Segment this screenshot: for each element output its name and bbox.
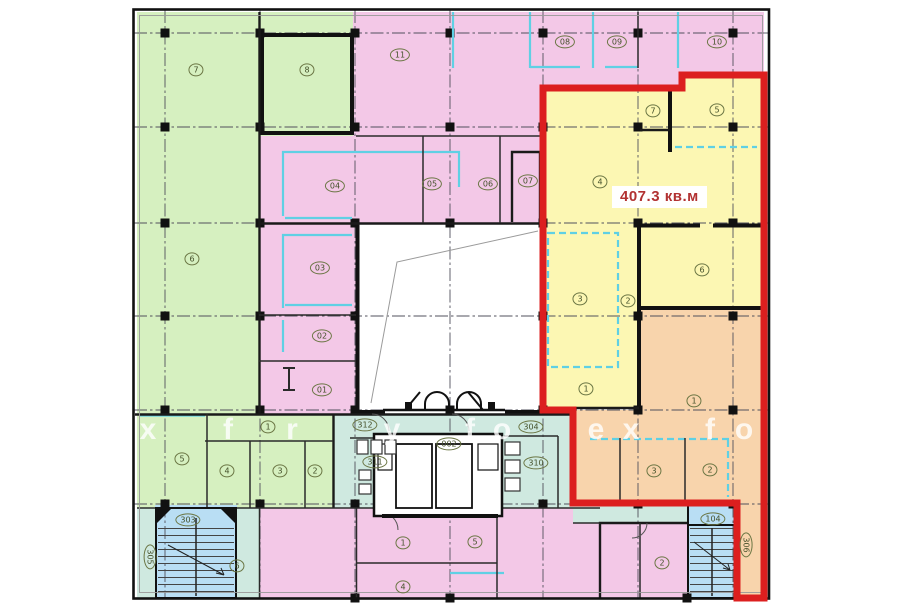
room-label-orange-2: 2: [702, 463, 717, 476]
room-labels-layer: 7861108091004050607030201475632113215432…: [0, 0, 900, 604]
room-label-pink-11: 11: [390, 48, 410, 61]
room-label-teal-311: 311: [362, 455, 387, 468]
room-label-green-7: 7: [188, 63, 203, 76]
area-value: 407.3: [620, 188, 660, 205]
room-label-teal-305: 305: [143, 544, 156, 569]
room-label-yellow-4: 4: [592, 175, 607, 188]
room-label-pink-09: 09: [607, 35, 627, 48]
room-label-yellow-5: 5: [709, 103, 724, 116]
room-label-green-6: 6: [184, 252, 199, 265]
room-label-pink-08: 08: [555, 35, 575, 48]
floor-plan: xfryfoexfo 78611080910040506070302014756…: [0, 0, 900, 604]
room-label-yellow-3: 3: [572, 292, 587, 305]
room-label-teal-002: 002: [436, 437, 461, 450]
room-label-pink-4: 4: [395, 580, 410, 593]
area-label: 407.3 кв.м: [612, 186, 707, 208]
room-label-yellow-6: 6: [694, 263, 709, 276]
room-label-pink-07: 07: [518, 174, 538, 187]
room-label-yellow-2: 2: [620, 294, 635, 307]
room-label-pink-10: 10: [707, 35, 727, 48]
room-label-stair-303: 303: [175, 513, 200, 526]
room-label-pink-03: 03: [310, 261, 330, 274]
area-unit: кв.м: [665, 188, 699, 205]
room-label-green-3: 3: [272, 464, 287, 477]
room-label-pink-5: 5: [467, 535, 482, 548]
room-label-pink-02: 02: [312, 329, 332, 342]
room-label-orange-1: 1: [686, 394, 701, 407]
room-label-teal-312: 312: [352, 418, 377, 431]
room-label-pink-2: 2: [654, 556, 669, 569]
room-label-orange-3: 3: [646, 464, 661, 477]
room-label-stair-104: 104: [700, 512, 725, 525]
room-label-orange-306: 306: [739, 532, 752, 557]
room-label-teal-304: 304: [518, 420, 543, 433]
room-label-pink-06: 06: [478, 177, 498, 190]
room-label-pink-01: 01: [312, 383, 332, 396]
room-label-pink-6: 6: [229, 559, 244, 572]
room-label-green-1: 1: [260, 420, 275, 433]
room-label-pink-1: 1: [395, 536, 410, 549]
room-label-green-8: 8: [299, 63, 314, 76]
room-label-pink-04: 04: [325, 179, 345, 192]
room-label-green-2: 2: [307, 464, 322, 477]
room-label-teal-310: 310: [523, 456, 548, 469]
room-label-yellow-7: 7: [645, 104, 660, 117]
room-label-pink-05: 05: [422, 177, 442, 190]
room-label-yellow-1: 1: [578, 382, 593, 395]
room-label-green-4: 4: [219, 464, 234, 477]
room-label-green-5: 5: [174, 452, 189, 465]
